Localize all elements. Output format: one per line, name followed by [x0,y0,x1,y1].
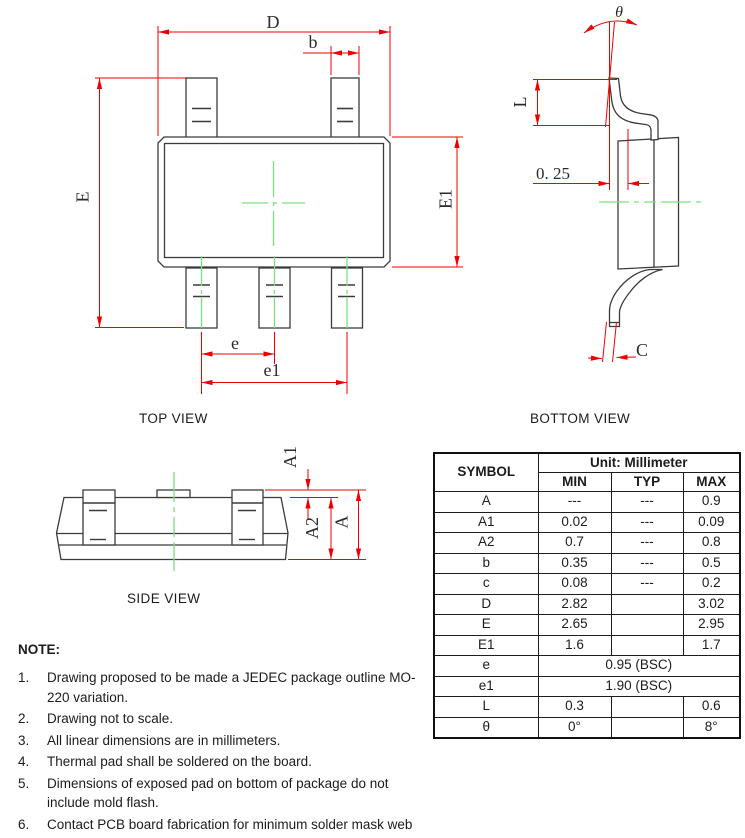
note-item: 6.Contact PCB board fabrication for mini… [18,815,432,838]
bottom-view-title: BOTTOM VIEW [530,411,630,426]
symbol-cell: D [434,594,538,615]
upper-lead [609,78,658,140]
table-row: D2.823.02 [434,594,740,615]
table-row: θ0°8° [434,717,740,738]
symbol-cell: A1 [434,512,538,533]
min-cell: 2.82 [538,594,611,615]
min-cell: --- [538,492,611,513]
symbol-cell: E1 [434,635,538,656]
note-text: Contact PCB board fabrication for minimu… [47,815,425,838]
note-item: 3.All linear dimensions are in millimete… [18,731,432,751]
side-view-title: SIDE VIEW [127,591,200,606]
note-number: 3. [18,731,47,751]
lower-lead [610,270,663,327]
table-row: c0.08---0.2 [434,574,740,595]
max-cell: 8° [683,717,740,738]
symbol-cell: c [434,574,538,595]
table-row: e0.95 (BSC) [434,656,740,677]
typ-cell [611,615,683,636]
note-item: 5.Dimensions of exposed pad on bottom of… [18,774,432,813]
note-item: 1.Drawing proposed to be made a JEDEC pa… [18,668,432,707]
min-cell: 0° [538,717,611,738]
min-cell: 0.02 [538,512,611,533]
max-cell: 0.2 [683,574,740,595]
note-text: All linear dimensions are in millimeters… [47,731,425,751]
dim-label-A: A [332,516,352,529]
note-text: Drawing not to scale. [47,709,425,729]
symbol-cell: e [434,656,538,677]
typ-cell [611,594,683,615]
symbol-cell: L [434,697,538,718]
symbol-header: SYMBOL [434,453,538,492]
typ-header: TYP [611,473,683,492]
dim-label-e: e [231,333,239,353]
dimension-table-body: A------0.9A10.02---0.09A20.7---0.8b0.35-… [434,492,740,739]
dim-label-E: E [73,192,93,203]
notes-list: 1.Drawing proposed to be made a JEDEC pa… [18,668,432,838]
note-text: Drawing proposed to be made a JEDEC pack… [47,668,425,707]
max-cell: 0.09 [683,512,740,533]
symbol-cell: e1 [434,676,538,697]
top-view-upper-pins [186,78,359,138]
note-number: 2. [18,709,47,729]
symbol-cell: A2 [434,533,538,554]
table-row: E11.61.7 [434,635,740,656]
side-view-drawing: A1 A2 A [57,446,367,571]
dim-label-L: L [510,97,530,108]
symbol-cell: θ [434,717,538,738]
typ-cell: --- [611,533,683,554]
note-text: Thermal pad shall be soldered on the boa… [47,752,425,772]
min-cell: 0.7 [538,533,611,554]
symbol-cell: E [434,615,538,636]
note-item: 4.Thermal pad shall be soldered on the b… [18,752,432,772]
min-cell: 2.65 [538,615,611,636]
min-header: MIN [538,473,611,492]
min-cell: 0.08 [538,574,611,595]
notes-heading: NOTE: [18,642,432,657]
table-row: A20.7---0.8 [434,533,740,554]
dim-label-A1: A1 [280,446,300,468]
dim-label-e1: e1 [264,360,281,380]
table-row: e11.90 (BSC) [434,676,740,697]
dim-label-E1: E1 [436,189,456,209]
note-number: 6. [18,815,47,835]
note-number: 4. [18,752,47,772]
min-cell: 0.35 [538,553,611,574]
min-cell: 0.3 [538,697,611,718]
note-text: Dimensions of exposed pad on bottom of p… [47,774,425,813]
typ-cell [611,635,683,656]
top-view-title: TOP VIEW [139,411,208,426]
symbol-cell: A [434,492,538,513]
max-cell: 0.6 [683,697,740,718]
dim-label-D: D [267,12,280,32]
note-item: 2.Drawing not to scale. [18,709,432,729]
typ-cell [611,697,683,718]
table-row: E2.652.95 [434,615,740,636]
note-number: 5. [18,774,47,794]
table-row: L0.30.6 [434,697,740,718]
symbol-cell: b [434,553,538,574]
typ-cell: --- [611,553,683,574]
dim-label-offset: 0. 25 [536,164,570,183]
max-cell: 3.02 [683,594,740,615]
dim-label-A2: A2 [302,517,322,539]
top-view-drawing: D b E E1 e e1 [73,12,464,394]
table-row: b0.35---0.5 [434,553,740,574]
max-cell: 0.9 [683,492,740,513]
notes-section: NOTE: 1.Drawing proposed to be made a JE… [18,642,432,838]
typ-cell: --- [611,574,683,595]
bottom-view-drawing: θ L 0. 25 C [510,4,703,362]
bottom-view-body [618,138,679,270]
dim-label-b: b [309,32,318,52]
unit-header: Unit: Millimeter [538,453,740,473]
span-value-cell: 1.90 (BSC) [538,676,740,697]
package-outline-page: D b E E1 e e1 [0,0,745,838]
table-row: A10.02---0.09 [434,512,740,533]
typ-cell [611,717,683,738]
max-cell: 0.5 [683,553,740,574]
max-cell: 2.95 [683,615,740,636]
table-row: A------0.9 [434,492,740,513]
min-cell: 1.6 [538,635,611,656]
span-value-cell: 0.95 (BSC) [538,656,740,677]
max-cell: 1.7 [683,635,740,656]
dim-label-theta: θ [615,4,623,21]
max-header: MAX [683,473,740,492]
dim-label-C: C [636,340,648,360]
typ-cell: --- [611,512,683,533]
max-cell: 0.8 [683,533,740,554]
typ-cell: --- [611,492,683,513]
dimension-table: SYMBOL Unit: Millimeter MIN TYP MAX A---… [433,452,741,739]
note-number: 1. [18,668,47,688]
